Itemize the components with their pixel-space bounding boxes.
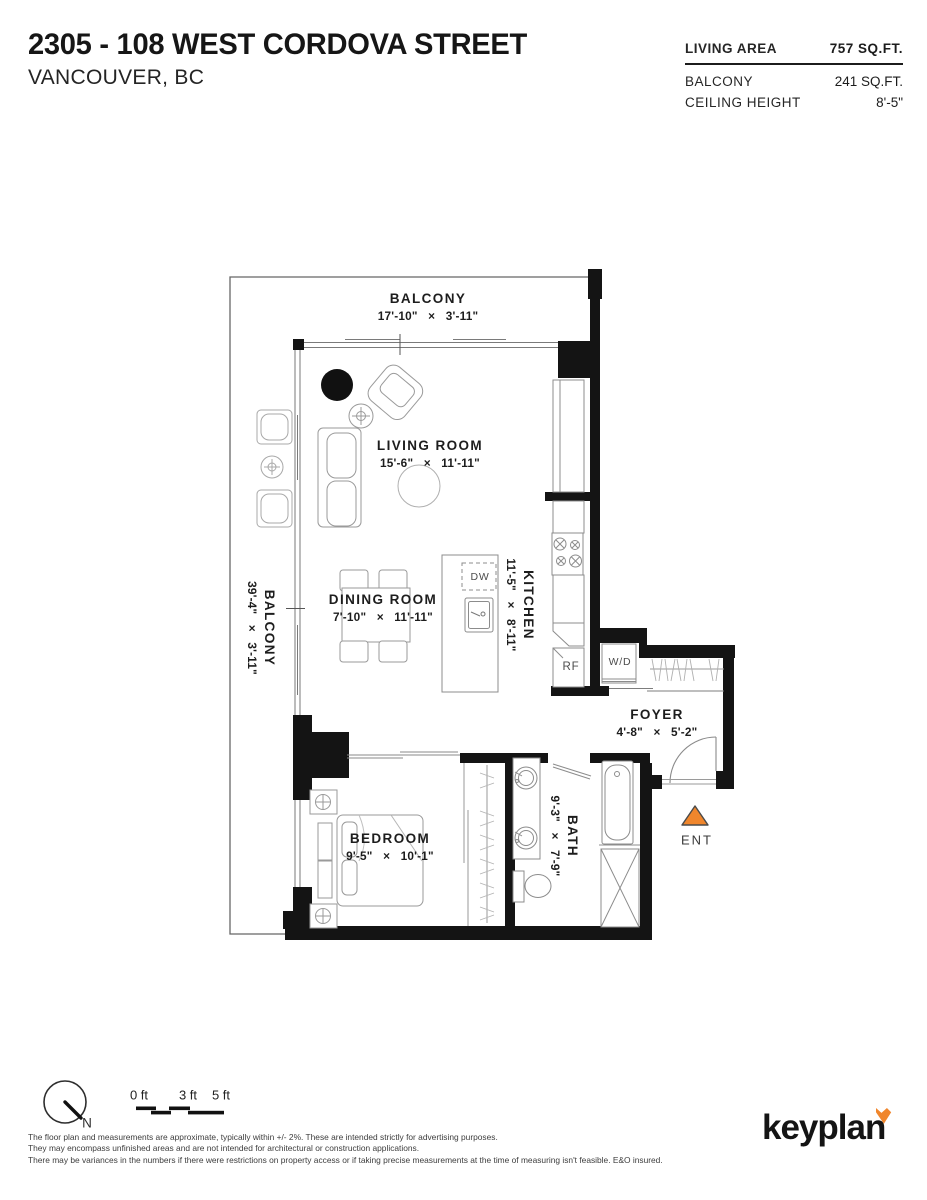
room-label-balcony-left: BALCONY 39'-4" × 3'-11" — [245, 581, 277, 675]
keyplan-logo: keyplan — [762, 1108, 885, 1148]
stat-ceiling-height: CEILING HEIGHT 8'-5" — [685, 92, 903, 113]
balcony-furniture — [257, 410, 292, 527]
patio-chair — [257, 490, 292, 527]
room-dims: 4'-8" × 5'-2" — [617, 725, 698, 739]
disclaimer-line: There may be variances in the numbers if… — [28, 1155, 663, 1166]
scale-bar — [135, 1105, 230, 1119]
corner-cabinet — [553, 623, 584, 646]
dining-chair — [379, 641, 407, 662]
accent-table — [321, 369, 353, 401]
room-label-kitchen: KITCHEN 11'-5" × 8'-11" — [504, 558, 536, 651]
floorplan-drawing — [195, 255, 765, 955]
kitchen-counters — [552, 380, 584, 687]
bedside-shelf — [318, 823, 332, 860]
closet-sliders — [464, 763, 468, 926]
closet-hangers — [652, 659, 719, 681]
stat-label: LIVING AREA — [685, 41, 777, 56]
entry-marker-icon — [682, 806, 708, 825]
room-dims: 7'-10" × 11'-11" — [329, 610, 437, 624]
bedroom-closet — [464, 763, 494, 926]
dining-chair — [340, 641, 368, 662]
label-refrigerator: RF — [563, 661, 580, 673]
scale-label-0: 0 ft — [130, 1088, 148, 1103]
scale-label-3: 3 ft — [179, 1088, 197, 1103]
stat-label: BALCONY — [685, 74, 753, 89]
room-label-bedroom: BEDROOM 9'-5" × 10'-1" — [346, 831, 434, 863]
room-name: BATH — [565, 796, 580, 877]
logo-fox-icon — [876, 1108, 893, 1125]
room-dims: 9'-5" × 10'-1" — [346, 849, 434, 863]
round-rug — [398, 465, 440, 507]
stat-balcony: BALCONY 241 SQ.FT. — [685, 71, 903, 92]
room-label-dining-room: DINING ROOM 7'-10" × 11'-11" — [329, 592, 437, 624]
disclaimer-line: The floor plan and measurements are appr… — [28, 1132, 663, 1143]
room-label-foyer: FOYER 4'-8" × 5'-2" — [617, 707, 698, 739]
room-name: BALCONY — [378, 291, 479, 306]
room-dims: 11'-5" × 8'-11" — [504, 558, 518, 651]
closet-doors — [609, 689, 724, 692]
page-subtitle: VANCOUVER, BC — [28, 66, 204, 90]
bedside-shelf — [318, 861, 332, 898]
shower — [599, 845, 640, 927]
area-stats: LIVING AREA 757 SQ.FT. BALCONY 241 SQ.FT… — [685, 38, 903, 113]
room-name: DINING ROOM — [329, 592, 437, 607]
armchair — [364, 361, 427, 424]
scale-label-5: 5 ft — [212, 1088, 230, 1103]
page-title: 2305 - 108 WEST CORDOVA STREET — [28, 28, 527, 62]
label-entry: ENT — [681, 833, 713, 848]
bathtub — [602, 761, 633, 844]
stat-value: 8'-5" — [876, 95, 903, 110]
room-name: BEDROOM — [346, 831, 434, 846]
stat-living-area: LIVING AREA 757 SQ.FT. — [685, 38, 903, 59]
bath-door — [553, 764, 591, 779]
room-dims: 17'-10" × 3'-11" — [378, 309, 479, 323]
room-name: FOYER — [617, 707, 698, 722]
stat-value: 241 SQ.FT. — [835, 74, 903, 89]
toilet — [513, 871, 551, 902]
room-dims: 15'-6" × 11'-11" — [377, 456, 483, 470]
entry-door — [662, 737, 716, 784]
disclaimer: The floor plan and measurements are appr… — [28, 1132, 663, 1166]
floorplan-page: { "header": { "title": "2305 - 108 WEST … — [0, 0, 927, 1200]
patio-chair — [257, 410, 292, 444]
room-label-bath: BATH 9'-3" × 7'-9" — [548, 796, 580, 877]
room-label-living-room: LIVING ROOM 15'-6" × 11'-11" — [377, 438, 483, 470]
room-dims: 9'-3" × 7'-9" — [548, 796, 562, 877]
room-name: BALCONY — [262, 581, 277, 675]
bedroom-sliding-door — [347, 752, 460, 758]
room-name: KITCHEN — [521, 558, 536, 651]
room-label-balcony-top: BALCONY 17'-10" × 3'-11" — [378, 291, 479, 323]
stats-divider — [685, 63, 903, 65]
disclaimer-line: They may encompass unfinished areas and … — [28, 1143, 663, 1154]
stove — [552, 533, 583, 575]
stat-value: 757 SQ.FT. — [830, 41, 903, 56]
label-washer-dryer: W/D — [609, 656, 632, 668]
room-dims: 39'-4" × 3'-11" — [245, 581, 259, 675]
room-name: LIVING ROOM — [377, 438, 483, 453]
stat-label: CEILING HEIGHT — [685, 95, 801, 110]
sofa — [318, 428, 361, 527]
label-dishwasher: DW — [470, 571, 489, 583]
north-label: N — [82, 1116, 92, 1131]
